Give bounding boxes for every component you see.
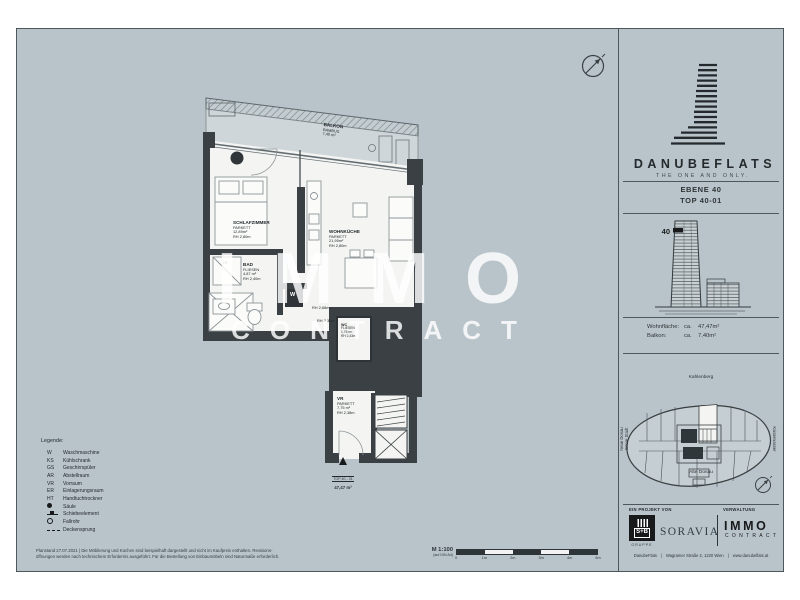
divider [623,504,779,505]
room-label-balkon: BALKON BAMBUS 7,40 m² [322,122,343,139]
sb-gruppe-sub: GRUPPE [629,543,655,547]
legend-item: EREinlagerungsraum [41,487,104,495]
deckensprung-icon [47,530,60,531]
building-elevation: 40 [627,217,777,319]
legend: Legende: WWaschmaschine KSKühlschrank GS… [41,438,104,534]
legend-item: Säule [41,503,104,511]
legend-item: Deckensprung [41,526,104,534]
unit-label: TOP 40-01 [618,196,784,205]
level-label: EBENE 40 [618,185,784,194]
sb-stripes-icon [636,519,649,527]
legend-item: Fallrohr [41,518,104,526]
fallrohr-icon [47,518,53,524]
divider [623,353,779,354]
sb-gruppe-logo: S+B [629,515,655,541]
logo-divider [717,515,718,546]
room-label-schlafzimmer: SCHLAFZIMMER PARKETT 12,89m² RH 2,80m [233,220,270,240]
elevator-shaft [375,430,407,459]
stat-row: Balkon: ca. 7,40m² [647,332,719,341]
legend-item: KSKühlschrank [41,457,104,465]
floorplan-sheet-page: W BALKON BAMBUS 7,40 m² SCHLAFZIMMER PAR… [0,0,800,600]
entrance-arrow-icon [335,456,351,466]
project-by-label: EIN PROJEKT VON [629,507,672,512]
legend-title: Legende: [41,438,104,444]
divider [623,213,779,214]
disclaimer: Planstand 27.07.2021 | Die Möblierung un… [36,548,308,559]
area-stats: Wohnfläche: ca. 47,47m² Balkon: ca. 7,40… [647,323,719,341]
contact-line: DanubeFlats | Wagramer Straße 2, 1220 Wi… [618,553,784,558]
saeule-column [231,152,244,165]
room-label-vr: VR PARKETT 7,75 m² RH 2,38m [337,396,355,416]
scale-bar: 0 1m 2m 3m 4m 5m [456,549,598,563]
soravia-logo: SORAVIA [660,526,719,538]
watermark-contract: CONTRACT [177,315,579,346]
site-label-east: Kaiserwasser [772,411,777,467]
schiebeelement-icon [47,511,58,515]
stat-row: Wohnfläche: ca. 47,47m² [647,323,719,332]
legend-item: ARAbstellraum [41,472,104,480]
entrance-unit-label: TOP 40 - 01 47,47 m² [325,467,361,490]
legend-item: VRVorraum [41,480,104,488]
highlighted-unit [699,405,717,442]
legend-item: HTHandtuchtrockner [41,495,104,503]
legend-item: Schiebeelement [41,511,104,519]
plan-sheet: W BALKON BAMBUS 7,40 m² SCHLAFZIMMER PAR… [16,28,784,572]
site-label-south: Alte Donau [618,470,784,475]
site-plan [613,385,785,501]
stair-shaft [375,395,407,428]
legend-item: WWaschmaschine [41,449,104,457]
watermark-immo: IMMO [167,238,587,320]
saeule-icon [47,503,52,508]
floor-badge: 40 [662,227,670,236]
site-label-west: Neue Donau Innere Stadt [619,409,629,469]
legend-item: GSGeschirrspüler [41,464,104,472]
scale-label: M 1:100 (auf DIN A4) [409,547,453,557]
brand-name: DANUBEFLATS [618,157,788,171]
management-label: VERWALTUNG [723,507,755,512]
site-label-north: Kahlenberg [618,375,784,380]
site-compass-icon [756,476,773,493]
divider [623,181,779,182]
north-compass-icon [577,49,611,83]
brand-tagline: THE ONE AND ONLY. [618,173,786,179]
immo-contract-logo: IMMO [724,519,768,533]
divider [623,317,779,318]
immo-contract-sub: CONTRACT [725,533,779,539]
danubeflats-logo-icon [671,59,731,153]
